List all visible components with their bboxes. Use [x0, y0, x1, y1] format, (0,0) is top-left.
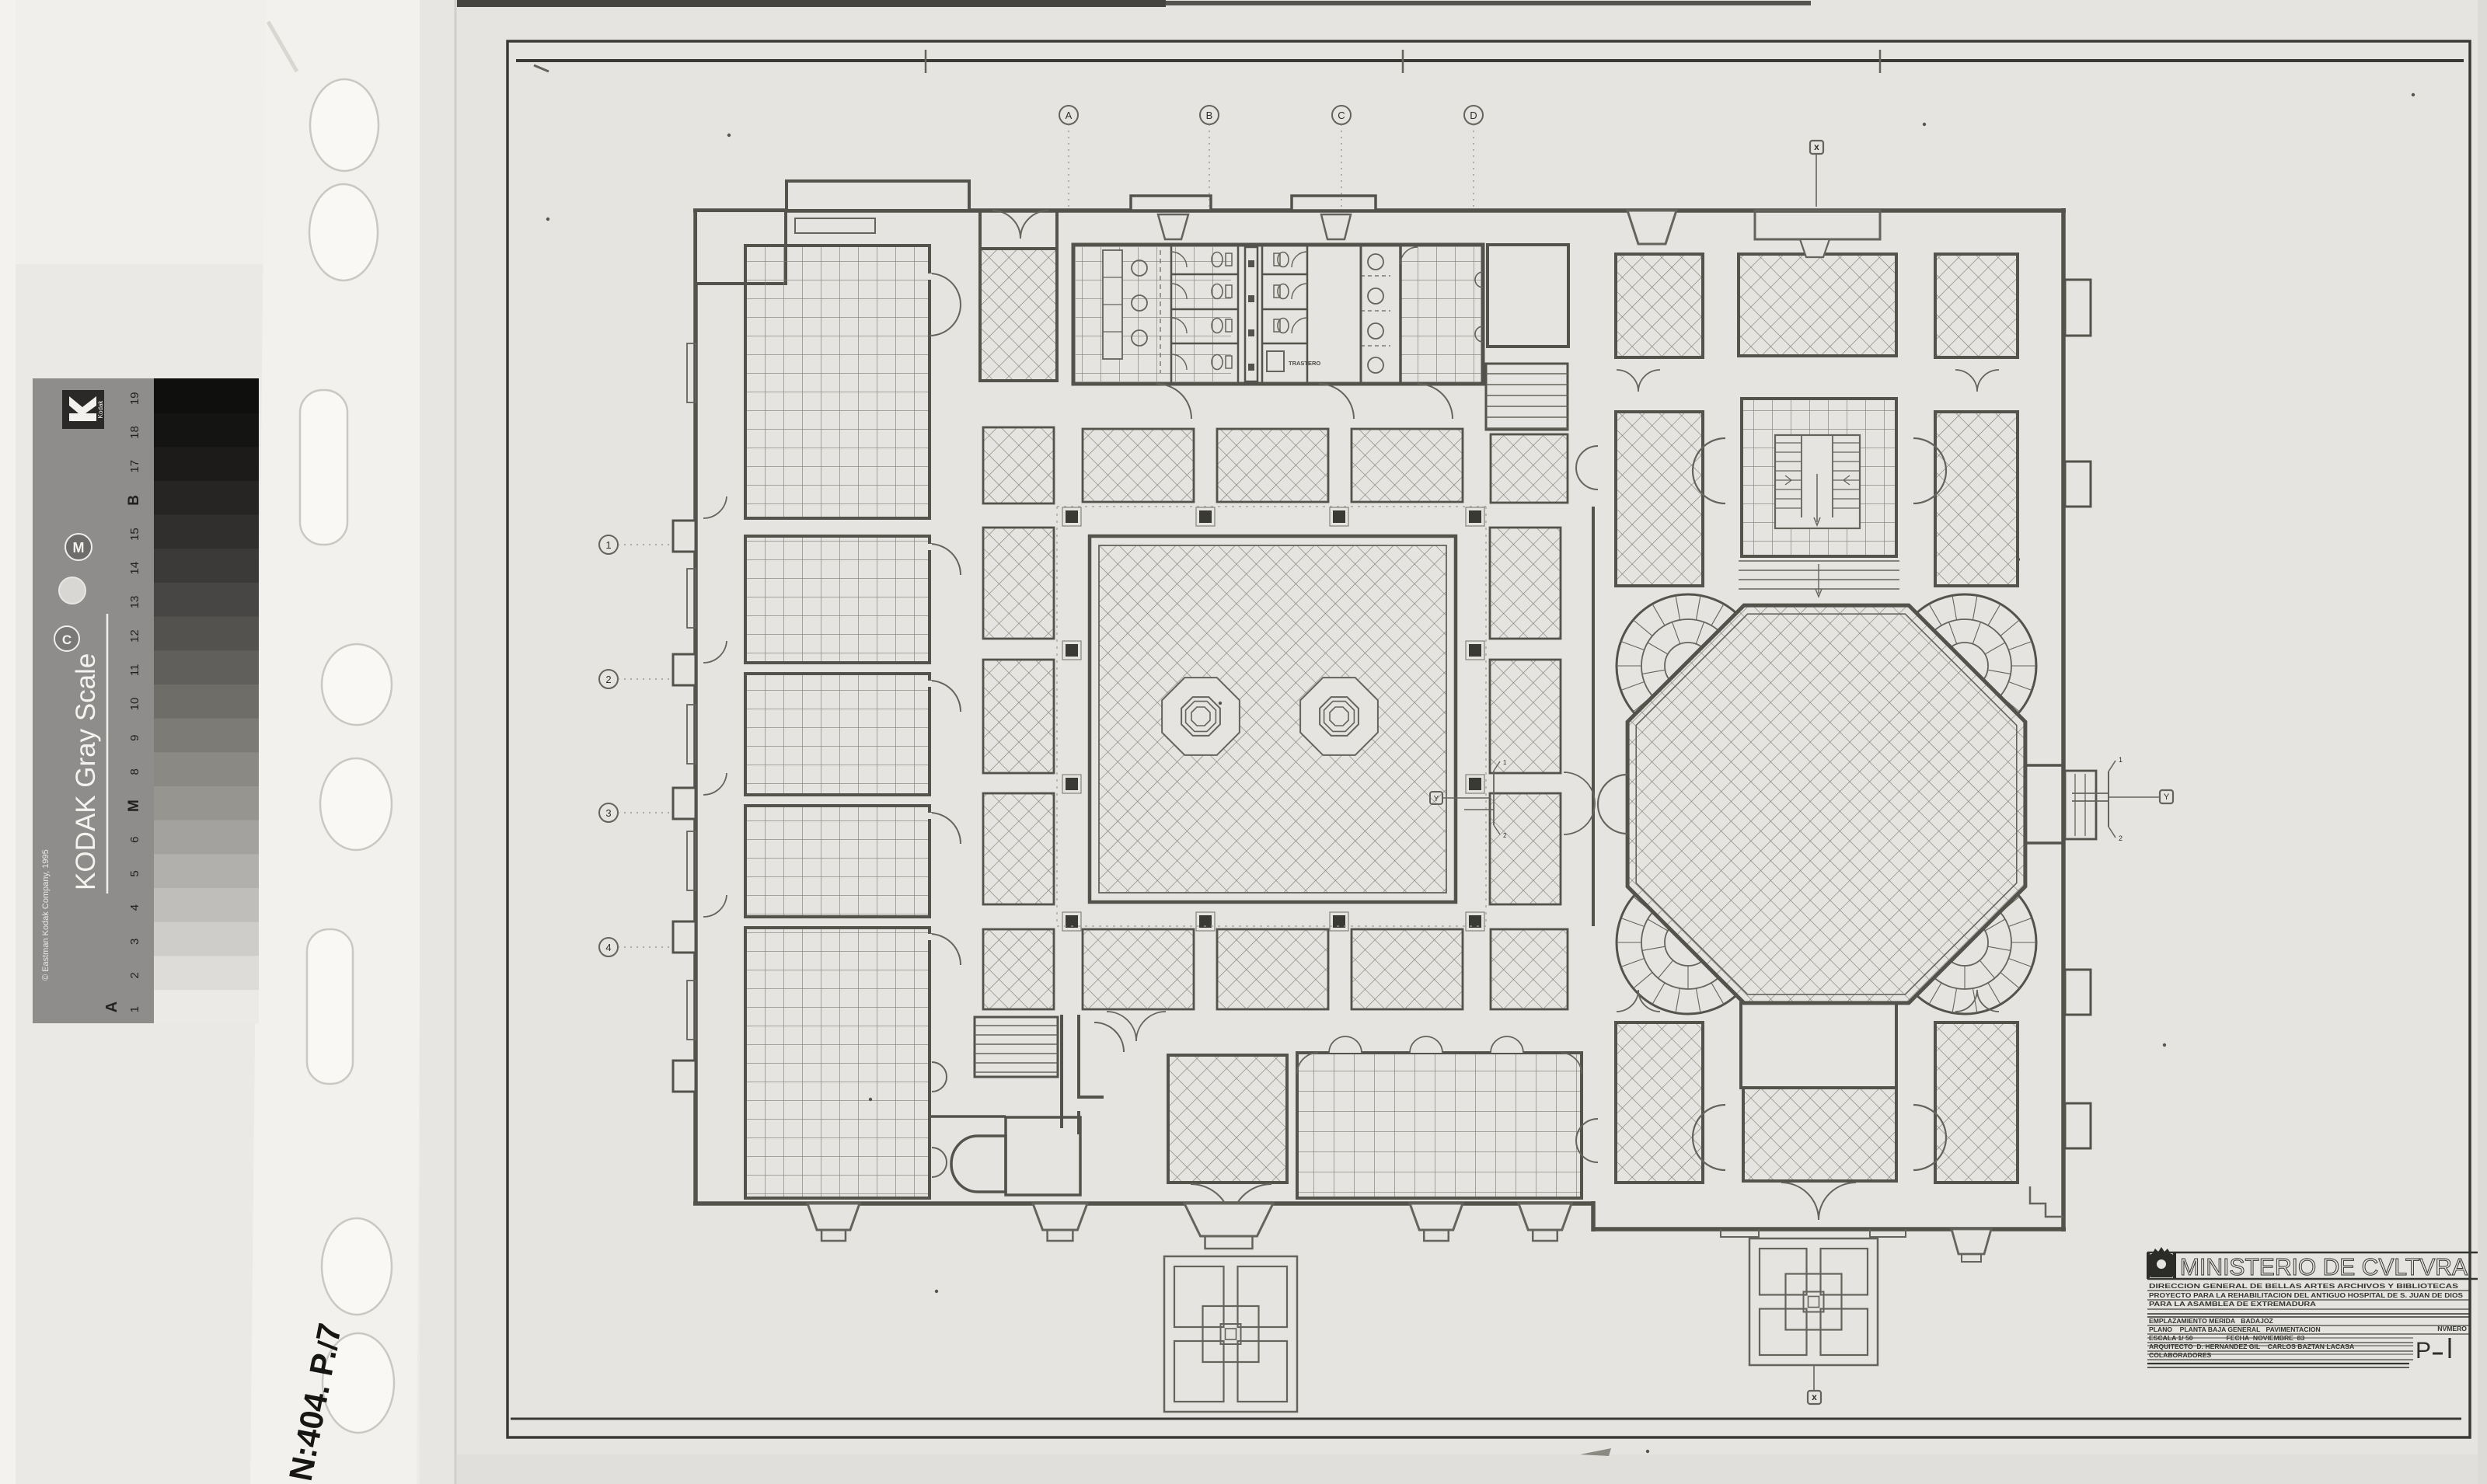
svg-text:DIRECCION GENERAL DE BELLAS AR: DIRECCION GENERAL DE BELLAS ARTES ARCHIV… — [2149, 1282, 2458, 1290]
svg-text:Y: Y — [2164, 793, 2170, 802]
svg-text:9: 9 — [128, 735, 141, 741]
svg-text:M: M — [73, 540, 85, 556]
svg-text:PLANO PLANTA BAJA GENERAL: PLANO PLANTA BAJA GENERAL PAVIMENTACION — [2149, 1325, 2321, 1333]
svg-text:COLABORADORES: COLABORADORES — [2149, 1351, 2211, 1359]
svg-text:2: 2 — [1503, 832, 1507, 839]
svg-text:2: 2 — [128, 972, 141, 978]
svg-text:3: 3 — [128, 939, 141, 945]
svg-text:18: 18 — [128, 426, 141, 439]
svg-text:B: B — [126, 495, 142, 506]
svg-text:1: 1 — [128, 1006, 141, 1012]
svg-text:M: M — [126, 799, 142, 812]
svg-text:1: 1 — [1503, 759, 1507, 766]
svg-text:D: D — [1470, 110, 1477, 121]
svg-text:NVMERO: NVMERO — [2437, 1325, 2467, 1332]
svg-text:17: 17 — [128, 460, 141, 473]
svg-text:19: 19 — [128, 392, 141, 405]
svg-text:A: A — [103, 1002, 120, 1012]
svg-text:C: C — [1338, 110, 1345, 121]
svg-text:ARQUITECTO D. HERNANDEZ GIL: ARQUITECTO D. HERNANDEZ GIL CARLOS BAZTA… — [2149, 1343, 2354, 1350]
svg-text:6: 6 — [128, 837, 141, 843]
svg-text:12: 12 — [128, 629, 141, 643]
svg-text:5: 5 — [128, 870, 141, 876]
svg-text:KODAK Gray Scale: KODAK Gray Scale — [71, 653, 101, 890]
svg-text:x: x — [1812, 1392, 1817, 1402]
svg-text:Y: Y — [1434, 795, 1439, 803]
svg-text:11: 11 — [128, 664, 141, 677]
svg-text:15: 15 — [128, 528, 141, 541]
svg-text:1: 1 — [605, 539, 611, 551]
svg-text:C: C — [62, 632, 72, 647]
svg-text:A: A — [1066, 110, 1073, 121]
svg-text:4: 4 — [605, 942, 611, 953]
svg-text:P: P — [2415, 1338, 2431, 1364]
svg-text:14: 14 — [128, 562, 141, 575]
svg-text:13: 13 — [128, 596, 141, 609]
svg-text:PARA LA ASAMBLEA DE EXTREMADUR: PARA LA ASAMBLEA DE EXTREMADURA — [2149, 1300, 2316, 1308]
svg-text:PROYECTO PARA LA REHABILITACIO: PROYECTO PARA LA REHABILITACION DEL ANTI… — [2149, 1291, 2463, 1299]
svg-text:2: 2 — [2119, 834, 2122, 842]
svg-text:8: 8 — [128, 768, 141, 775]
svg-text:B: B — [1206, 110, 1213, 121]
svg-text:MINISTERIO DE CVLTVRA: MINISTERIO DE CVLTVRA — [2180, 1253, 2468, 1280]
svg-text:© Eastman Kodak Company, 1995: © Eastman Kodak Company, 1995 — [41, 849, 51, 981]
svg-text:2: 2 — [605, 674, 611, 685]
svg-text:1: 1 — [2119, 756, 2122, 764]
svg-text:EMPLAZAMIENTO MERIDA BADAJOZ: EMPLAZAMIENTO MERIDA BADAJOZ — [2149, 1317, 2273, 1325]
svg-text:x: x — [1814, 141, 1819, 152]
svg-text:3: 3 — [605, 807, 611, 819]
svg-text:TRASTERO: TRASTERO — [1289, 360, 1320, 367]
svg-text:4: 4 — [128, 904, 141, 911]
svg-text:10: 10 — [128, 698, 141, 711]
svg-text:Kodak: Kodak — [97, 400, 104, 419]
